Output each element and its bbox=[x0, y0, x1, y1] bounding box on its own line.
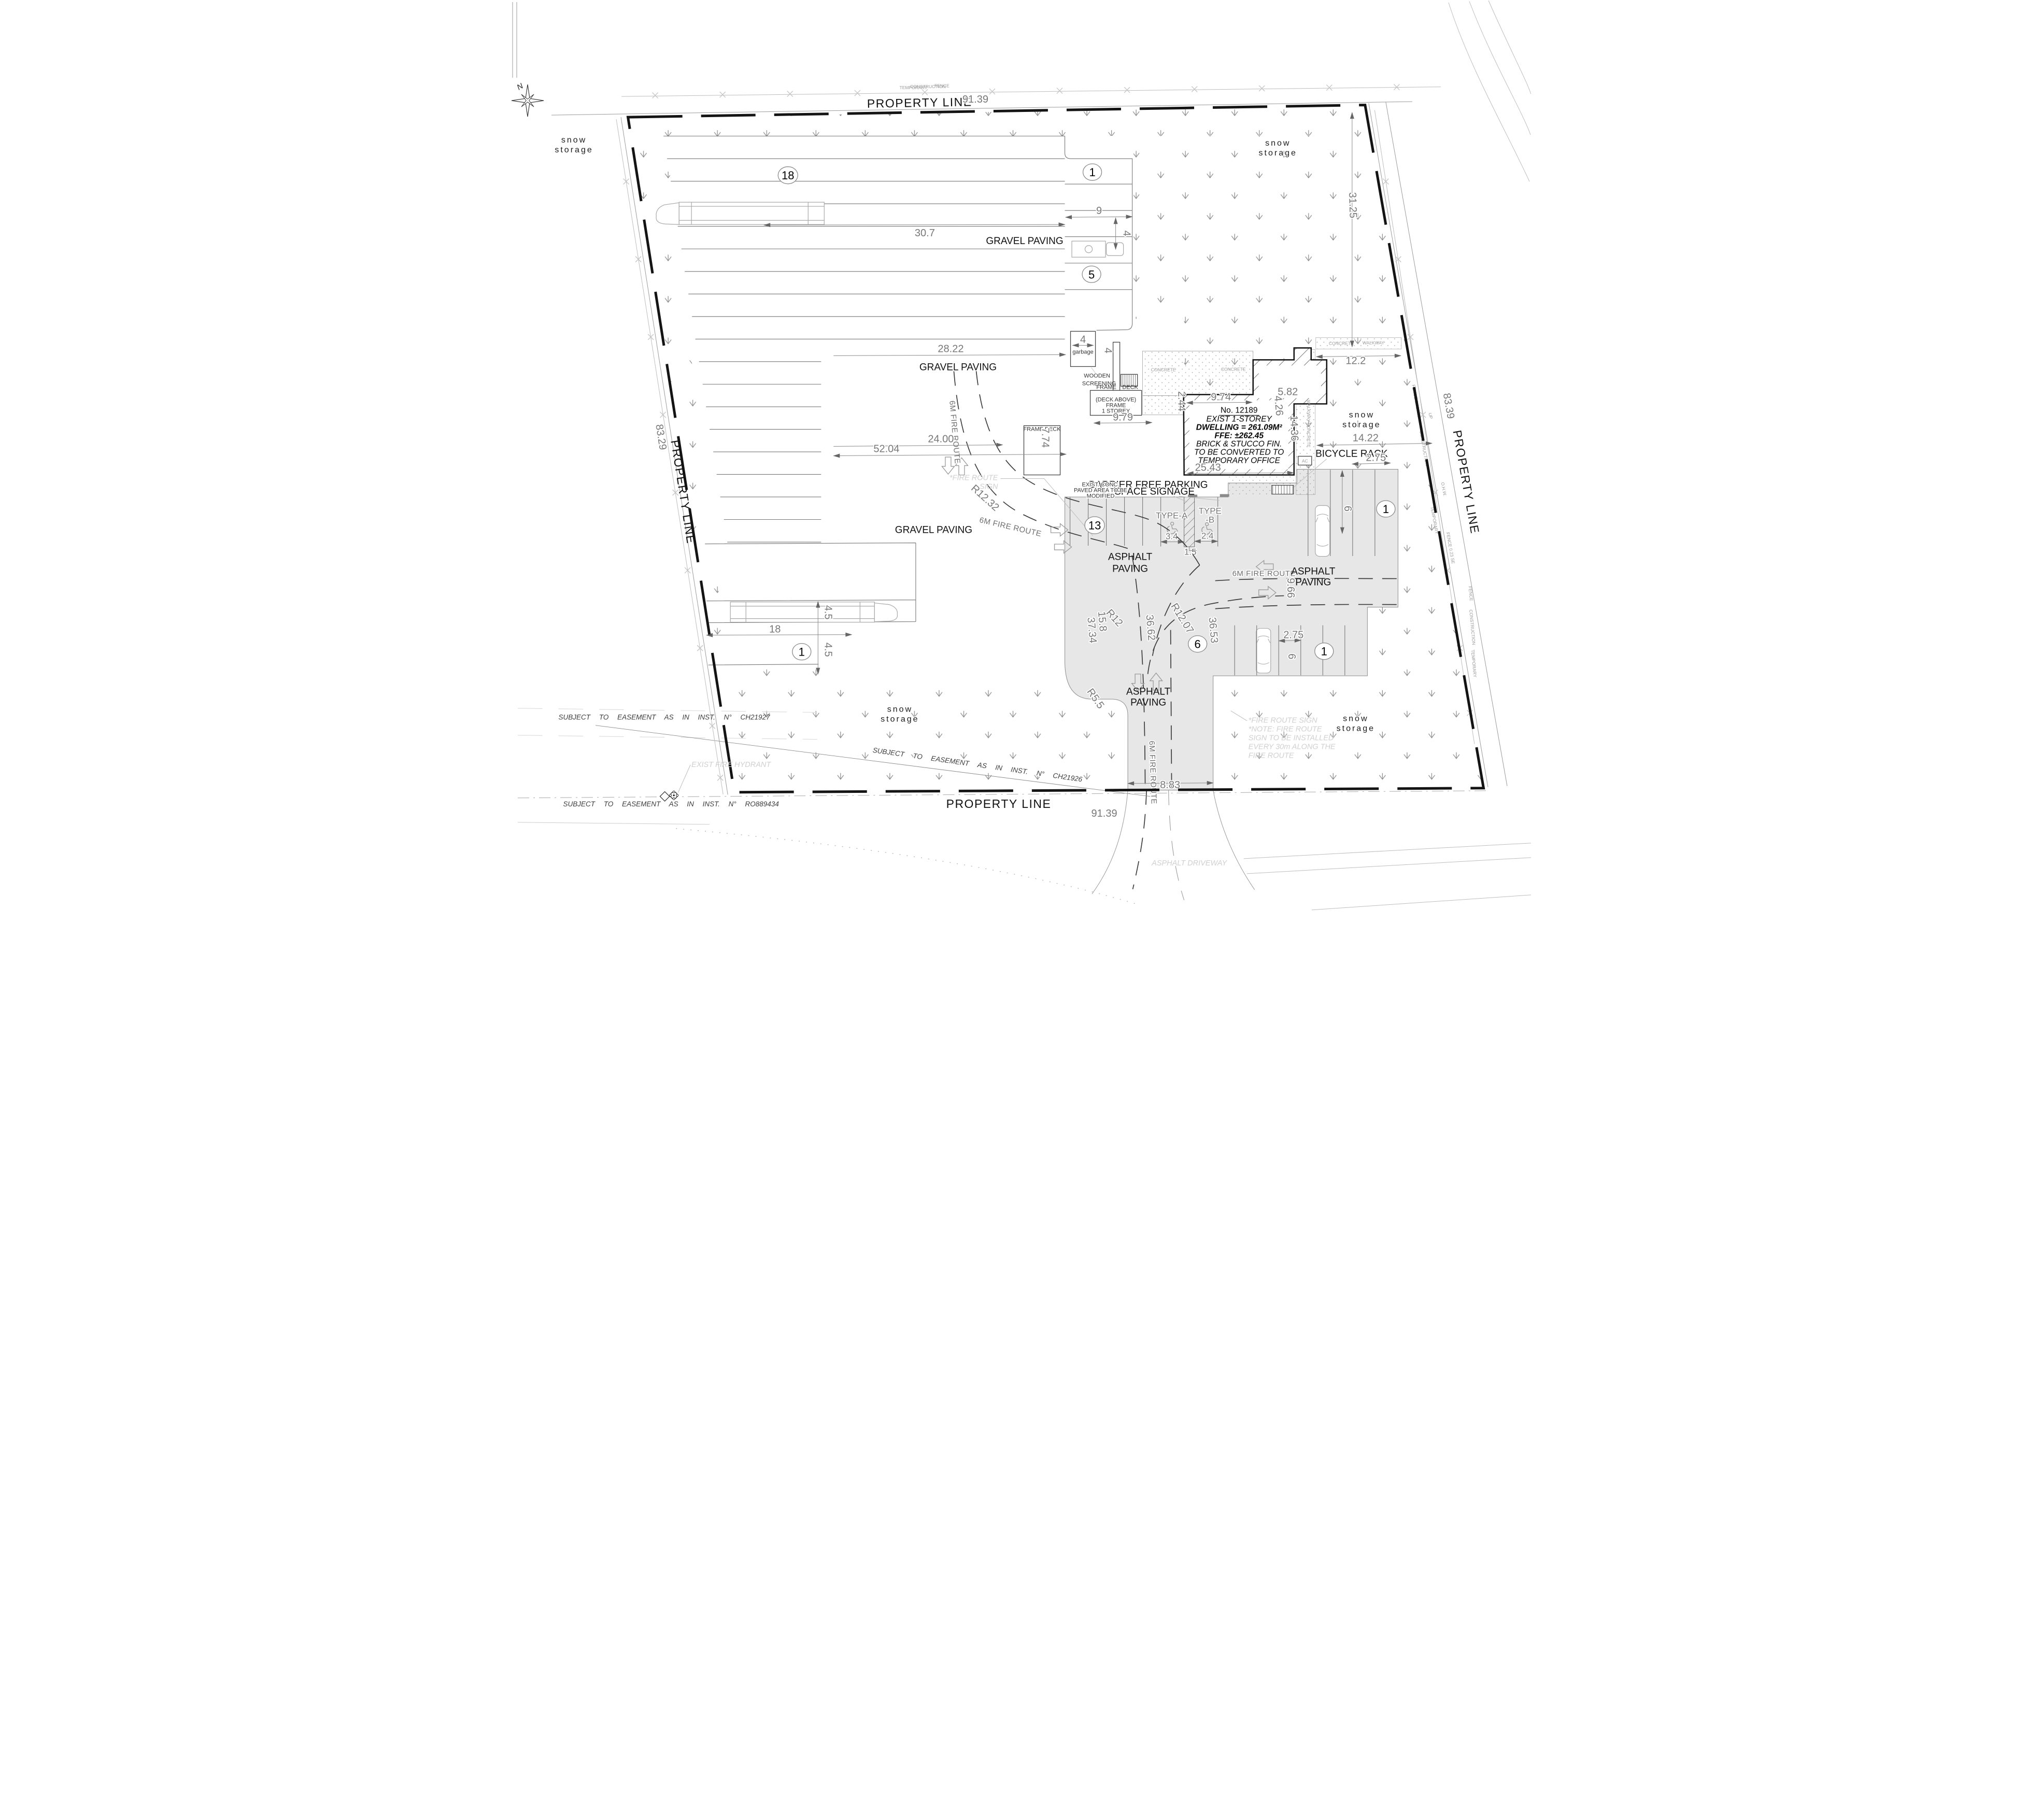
asphalt-paving-label-mid-1: ASPHALT bbox=[1108, 552, 1153, 563]
screening-label: SCREENING bbox=[1082, 380, 1116, 387]
signage-marker-1 bbox=[1188, 494, 1197, 497]
fire-route-note-2: *NOTE: FIRE ROUTE bbox=[1249, 726, 1322, 734]
asphalt-paving-label-mid-2: PAVING bbox=[1112, 564, 1148, 575]
building-storey: EXIST 1-STOREY bbox=[1207, 415, 1273, 423]
dim-8-83: 8.83 bbox=[1160, 779, 1180, 791]
snow-storage-tr-1: snow bbox=[1265, 139, 1291, 148]
grass-bottom bbox=[727, 667, 1127, 792]
fence-side-construction: CONSTRUCTION bbox=[1468, 609, 1477, 645]
dim-2-75-bike: 2.75 bbox=[1366, 452, 1386, 463]
dim-36-53: 36.53 bbox=[1207, 617, 1220, 644]
dim-9-74: 9.74 bbox=[1211, 391, 1231, 403]
building-area: DWELLING = 261.09M² bbox=[1196, 423, 1283, 432]
stall-count-1-lower-left: 1 bbox=[792, 644, 811, 660]
easement-ch21927: SUBJECT TO EASEMENT AS IN INST. N° CH219… bbox=[559, 714, 771, 721]
fence-note-up: UP bbox=[1427, 413, 1434, 420]
dim-9: 9 bbox=[1096, 205, 1102, 217]
property-line-label-right: PROPERTY LINE bbox=[1450, 429, 1482, 535]
dim-36-62: 36.62 bbox=[1143, 614, 1157, 641]
exist-fire-hydrant-label: EXIST FIRE HYDRANT bbox=[691, 761, 771, 769]
barrier-free-hatch-strip bbox=[1184, 497, 1195, 547]
exist-conc-label-2: PAVED AREA TO BE bbox=[1074, 487, 1127, 493]
dim-4-5-a: 4.5 bbox=[822, 605, 833, 620]
building-no: No. 12189 bbox=[1221, 406, 1258, 415]
fire-route-note-1: *FIRE ROUTE SIGN bbox=[1249, 717, 1317, 725]
property-dim-top: 91.39 bbox=[962, 94, 988, 105]
dim-2-75-stall: 2.75 bbox=[1283, 630, 1303, 641]
dim-14-22: 14.22 bbox=[1353, 432, 1379, 444]
dim-9-66: 9.66 bbox=[1285, 578, 1296, 598]
snow-storage-b-2: storage bbox=[881, 715, 919, 724]
concrete-walkway-n1: CONCRETE bbox=[1329, 340, 1354, 346]
deck-above-label: (DECK ABOVE) bbox=[1096, 396, 1136, 403]
dim-31-25: 31.25 bbox=[1347, 192, 1359, 219]
dim-type-a-width: 3.4 bbox=[1166, 532, 1178, 542]
fence-side-fence: FENCE bbox=[1468, 586, 1475, 602]
site-plan-page: { "plan": { "property": {"label":"PROPER… bbox=[510, 0, 1531, 911]
walkway-east-label: WALKWAY bbox=[1306, 400, 1311, 422]
snow-storage-b-1: snow bbox=[887, 705, 913, 714]
concrete-walkway-n2: WALKWAY bbox=[1363, 340, 1385, 345]
svg-text:13: 13 bbox=[1088, 519, 1101, 532]
dim-24-00: 24.00 bbox=[928, 433, 954, 445]
wooden-label: WOODEN bbox=[1084, 373, 1110, 379]
gravel-paving-label-3: GRAVEL PAVING bbox=[895, 525, 972, 536]
north-arrow-icon: N bbox=[512, 81, 544, 117]
concrete-patio bbox=[1143, 351, 1253, 395]
stall-count-18: 18 bbox=[778, 167, 798, 184]
car-right-top bbox=[1315, 505, 1330, 556]
dim-14-36: 14.36 bbox=[1288, 415, 1300, 442]
snow-storage-br-1: snow bbox=[1343, 715, 1368, 723]
north-label: N bbox=[516, 81, 525, 92]
stall-count-1-right-top: 1 bbox=[1377, 501, 1395, 517]
stall-count-6: 6 bbox=[1188, 636, 1207, 652]
fence-label-fence: FENCE bbox=[934, 83, 949, 89]
survey-marker bbox=[660, 792, 669, 801]
exist-conc-label-3: MODIFIED bbox=[1087, 493, 1115, 499]
svg-text:1: 1 bbox=[799, 646, 805, 659]
dim-30-7: 30.7 bbox=[915, 227, 935, 239]
deck-frame-label: FRAME bbox=[1106, 402, 1126, 408]
property-dim-left: 83.29 bbox=[653, 423, 669, 451]
dim-25-43: 25.43 bbox=[1195, 462, 1221, 473]
flow-arrow-down bbox=[942, 457, 954, 474]
dim-aisle-strip: 1.5 bbox=[1184, 547, 1197, 557]
dim-12-2: 12.2 bbox=[1345, 355, 1366, 366]
dim-6-top-row: 6 bbox=[1342, 506, 1353, 511]
fence-note-023: FENCE 0.23 SE bbox=[1445, 532, 1456, 564]
dim-2-44: 2.44 bbox=[1176, 391, 1187, 411]
stall-count-13: 13 bbox=[1085, 517, 1104, 534]
fire-route-sign-label-1: *FIRE ROUTE bbox=[949, 474, 998, 482]
property-dim-bottom: 91.39 bbox=[1092, 808, 1117, 819]
concrete-patio-label: CONCRETE bbox=[1151, 367, 1176, 372]
dim-garbage-h: 4 bbox=[1102, 348, 1114, 353]
svg-text:1: 1 bbox=[1383, 503, 1389, 516]
dim-4-26: 4.26 bbox=[1272, 395, 1285, 417]
property-line-label-top: PROPERTY LINE bbox=[867, 95, 972, 110]
asphalt-paving-label-drive-1: ASPHALT bbox=[1126, 687, 1171, 698]
fire-route-label-vertical: 6M FIRE ROUTE bbox=[947, 400, 962, 464]
dim-4-5-b: 4.5 bbox=[822, 643, 833, 657]
fire-hydrant-icon bbox=[670, 791, 678, 800]
snow-storage-r-1: snow bbox=[1349, 410, 1374, 419]
asphalt-paving-label-drive-2: PAVING bbox=[1130, 698, 1166, 708]
fire-route-note-3: SIGN TO BE INSTALLED bbox=[1249, 734, 1334, 743]
signage-marker-2 bbox=[1220, 494, 1229, 496]
truck-lower-left bbox=[730, 602, 897, 622]
dim-6-bottom-row: 6 bbox=[1286, 653, 1297, 659]
gravel-stall-lines-top-block bbox=[663, 136, 1065, 542]
svg-text:1: 1 bbox=[1089, 166, 1095, 179]
bicycle-rack bbox=[1272, 485, 1294, 494]
fence-note-ohw: O.H.W. bbox=[1440, 482, 1448, 497]
snow-storage-br-2: storage bbox=[1337, 724, 1375, 733]
svg-text:5: 5 bbox=[1088, 268, 1095, 281]
fence-side-temporary: TEMPORARY bbox=[1470, 649, 1478, 678]
building-finish: BRICK & STUCCO FIN. bbox=[1196, 439, 1282, 448]
concrete-east-label: CONCRETE bbox=[1306, 423, 1311, 448]
dim-18: 18 bbox=[769, 624, 781, 635]
snow-storage-tl-1: snow bbox=[561, 136, 587, 145]
stall-count-1-top: 1 bbox=[1083, 164, 1102, 180]
site-plan-canvas: ASPHALT DRIVEWAY TEMPORARY CONSTRUCTION … bbox=[510, 0, 1531, 911]
concrete-patio-label-2: CONCRETE bbox=[1221, 366, 1246, 372]
existing-driveway: ASPHALT DRIVEWAY bbox=[1092, 790, 1255, 900]
easement-ro889434: SUBJECT TO EASEMENT AS IN INST. N° RO889… bbox=[563, 800, 779, 808]
dim-type-b-width: 2.4 bbox=[1201, 531, 1214, 541]
building-converted: TO BE CONVERTED TO bbox=[1194, 448, 1284, 457]
garbage-label: garbage bbox=[1072, 349, 1093, 355]
building-ffe: FFE: ±262.45 bbox=[1214, 431, 1264, 440]
asphalt-paving-label-right-2: PAVING bbox=[1295, 577, 1331, 588]
dim-52-04: 52.04 bbox=[873, 443, 899, 454]
snow-storage-r-2: storage bbox=[1342, 420, 1381, 429]
fire-route-note-4: EVERY 30m ALONG THE bbox=[1249, 743, 1336, 751]
property-dim-right: 83.39 bbox=[1441, 392, 1456, 420]
svg-text:1: 1 bbox=[1321, 645, 1327, 658]
asphalt-driveway-label: ASPHALT DRIVEWAY bbox=[1151, 859, 1227, 868]
dim-4-row: 4 bbox=[1121, 231, 1132, 236]
dim-7-74: 7.74 bbox=[1040, 428, 1051, 448]
type-b-label-1: TYPE bbox=[1198, 506, 1221, 516]
dim-9-79: 9.79 bbox=[1113, 411, 1133, 423]
ac-label: AC bbox=[1302, 458, 1308, 463]
type-b-label-2: -B bbox=[1206, 515, 1214, 525]
asphalt-paving-label-right-1: ASPHALT bbox=[1291, 566, 1336, 577]
truck-top-left bbox=[656, 202, 824, 224]
dim-garbage-w: 4 bbox=[1080, 334, 1086, 345]
stall-count-5: 5 bbox=[1082, 266, 1101, 282]
fire-route-note-5: FIRE ROUTE bbox=[1249, 752, 1294, 760]
car-right-bottom bbox=[1256, 628, 1271, 673]
gravel-paving-label-2: GRAVEL PAVING bbox=[919, 362, 997, 373]
property-line-label-bottom: PROPERTY LINE bbox=[946, 797, 1052, 811]
stall-count-1-right-bottom: 1 bbox=[1315, 643, 1334, 660]
fire-route-label-aisle: 6M FIRE ROUTE bbox=[1232, 570, 1296, 578]
svg-text:6: 6 bbox=[1195, 638, 1201, 651]
deck-label: DECK bbox=[1122, 384, 1138, 390]
fire-route-label-drive: 6M FIRE ROUTE bbox=[1147, 741, 1158, 804]
type-a-label: TYPE-A bbox=[1156, 511, 1188, 521]
gravel-paving-label-1: GRAVEL PAVING bbox=[986, 236, 1063, 247]
snow-storage-tr-2: storage bbox=[1259, 149, 1297, 158]
dim-28-22: 28.22 bbox=[938, 343, 963, 354]
svg-text:18: 18 bbox=[782, 169, 794, 182]
exist-conc-label-1: EXIST. CONC. bbox=[1082, 481, 1119, 488]
snow-storage-tl-2: storage bbox=[555, 146, 593, 154]
